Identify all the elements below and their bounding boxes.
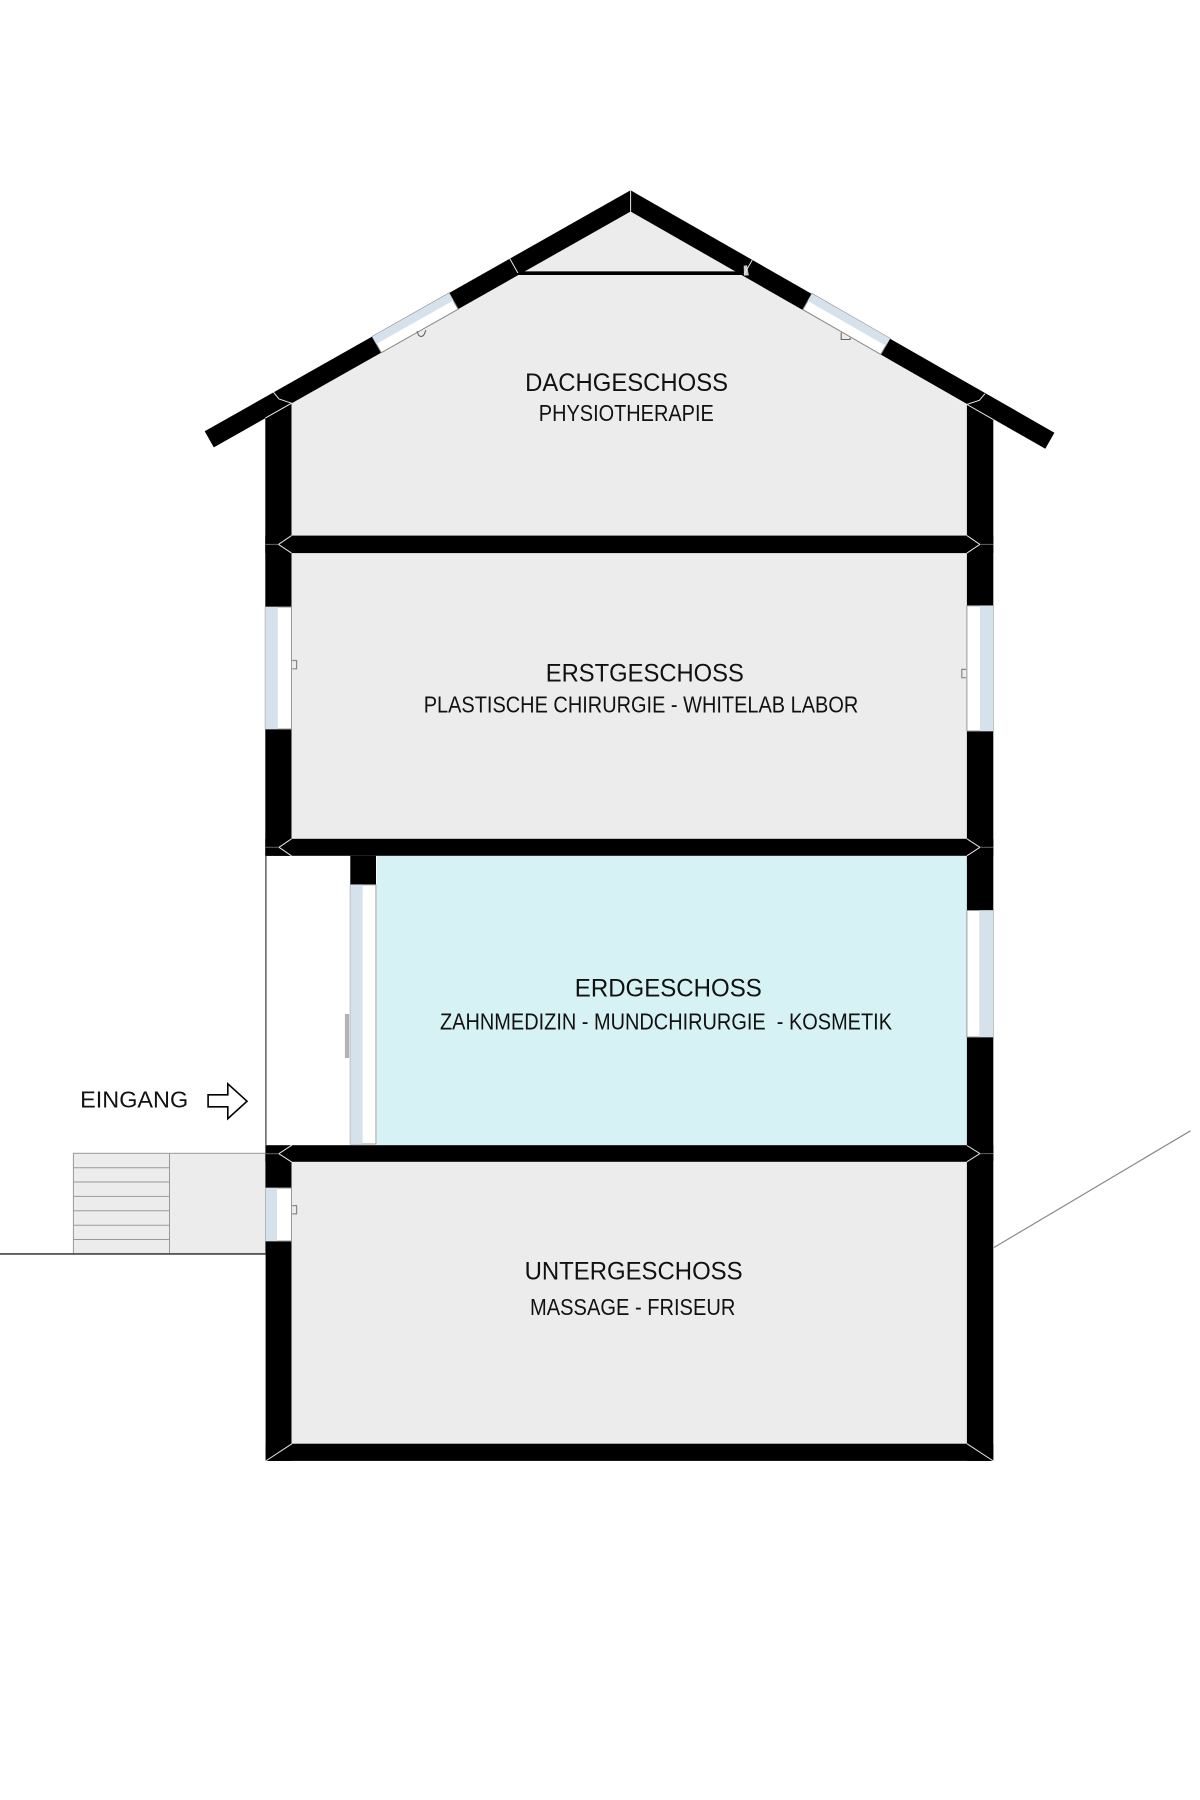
svg-text:MASSAGE - FRISEUR: MASSAGE - FRISEUR bbox=[530, 1294, 735, 1320]
svg-text:EINGANG: EINGANG bbox=[80, 1087, 188, 1113]
svg-text:ZAHNMEDIZIN - MUNDCHIRURGIE -: ZAHNMEDIZIN - MUNDCHIRURGIE - KOSMETIK bbox=[440, 1009, 892, 1035]
svg-text:DACHGESCHOSS: DACHGESCHOSS bbox=[525, 369, 728, 397]
svg-text:ERDGESCHOSS: ERDGESCHOSS bbox=[575, 975, 762, 1003]
svg-text:PHYSIOTHERAPIE: PHYSIOTHERAPIE bbox=[539, 400, 714, 426]
svg-text:ERSTGESCHOSS: ERSTGESCHOSS bbox=[546, 659, 744, 687]
svg-text:UNTERGESCHOSS: UNTERGESCHOSS bbox=[525, 1258, 743, 1286]
svg-text:PLASTISCHE CHIRURGIE - WHITELA: PLASTISCHE CHIRURGIE - WHITELAB LABOR bbox=[424, 692, 859, 718]
